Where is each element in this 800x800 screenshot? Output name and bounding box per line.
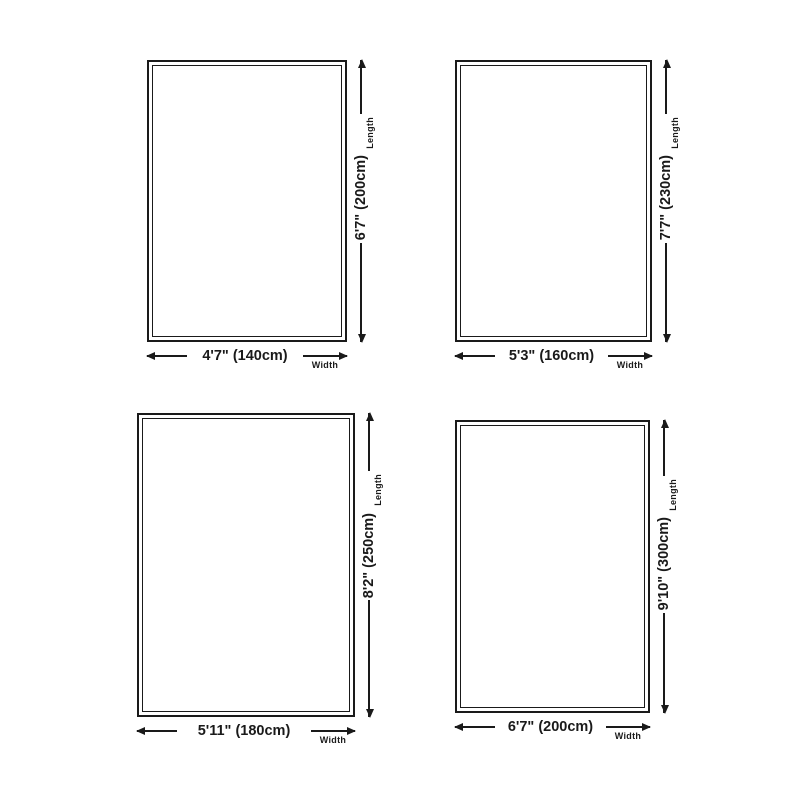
length-caption: Length [670,117,680,149]
length-caption: Length [365,117,375,149]
rug-rectangle [455,420,650,713]
rug-rectangle [147,60,347,342]
length-dimension-label: 7'7" (230cm) [658,155,674,240]
width-caption: Width [617,360,643,370]
rug-size-diagram-2: Length 7'7" (230cm) 5'3" (160cm) Width [455,60,652,342]
width-dimension-label: 4'7" (140cm) [187,347,303,365]
rug-size-diagram-3: Length 8'2" (250cm) 5'11" (180cm) Width [137,413,355,717]
rug-rectangle-inner-border [460,65,647,337]
length-arrow-top [368,413,370,471]
length-dimension-label: 9'10" (300cm) [656,517,672,610]
rug-rectangle-inner-border [460,425,645,708]
width-dimension: 4'7" (140cm) Width [147,347,347,370]
length-arrow-bottom [368,600,370,717]
width-arrow-left [137,730,177,732]
width-dimension-label: 5'3" (160cm) [495,347,608,365]
length-arrow-top [665,60,667,114]
width-arrow-left [455,355,495,357]
length-dimension: Length 6'7" (200cm) [352,60,370,342]
rug-rectangle [455,60,652,342]
length-caption: Length [668,479,678,511]
width-arrow-right [608,355,652,357]
width-caption: Width [312,360,338,370]
rug-rectangle-inner-border [142,418,350,712]
width-caption: Width [320,735,346,745]
rug-size-diagram-4: Length 9'10" (300cm) 6'7" (200cm) Width [455,420,650,713]
length-arrow-bottom [663,613,665,713]
width-arrow-right [606,726,650,728]
length-dimension-label: 8'2" (250cm) [361,513,377,598]
length-dimension: Length 9'10" (300cm) [655,420,673,713]
rug-rectangle-inner-border [152,65,342,337]
length-arrow-top [360,60,362,114]
width-caption: Width [615,731,641,741]
width-dimension-label: 6'7" (200cm) [495,718,606,736]
length-caption: Length [373,474,383,506]
width-dimension-label: 5'11" (180cm) [177,722,311,740]
width-arrow-right-group: Width [608,347,652,370]
width-arrow-right-group: Width [606,718,650,741]
length-dimension-label: 6'7" (200cm) [353,155,369,240]
width-arrow-right-group: Width [311,722,355,745]
length-arrow-bottom [360,243,362,342]
length-arrow-bottom [665,243,667,342]
width-arrow-right [303,355,347,357]
rug-size-chart: Length 6'7" (200cm) 4'7" (140cm) Width L… [0,0,800,800]
width-dimension: 6'7" (200cm) Width [455,718,650,741]
length-arrow-top [663,420,665,476]
width-arrow-right [311,730,355,732]
width-arrow-left [147,355,187,357]
width-arrow-right-group: Width [303,347,347,370]
length-dimension: Length 8'2" (250cm) [360,413,378,717]
rug-rectangle [137,413,355,717]
rug-size-diagram-1: Length 6'7" (200cm) 4'7" (140cm) Width [147,60,347,342]
width-dimension: 5'3" (160cm) Width [455,347,652,370]
width-arrow-left [455,726,495,728]
length-dimension: Length 7'7" (230cm) [657,60,675,342]
width-dimension: 5'11" (180cm) Width [137,722,355,745]
